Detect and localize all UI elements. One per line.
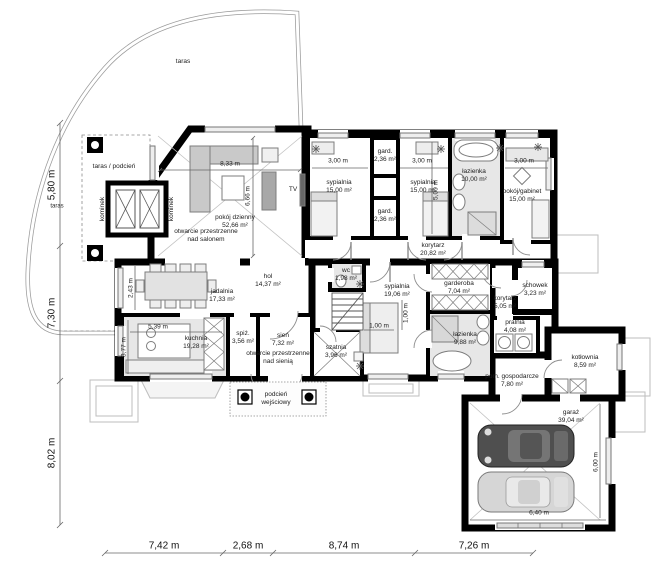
label-open-sien: otwarcie przestrzenne nad sienią [246,350,310,366]
fireplace [108,183,166,235]
dim-left-2: 7,30 m [47,298,58,329]
label-open-salon: otwarcie przestrzenne nad salonem [174,228,238,244]
label-taras-left: taras [50,203,63,211]
room-label-wc: wc1,98 m² [335,267,357,283]
room-label-gard-2: gard.2,36 m² [374,208,396,224]
dim-kuchnia-h: 3,77 m [121,337,128,357]
room-label-pom-gospodarcze: pom. gospodarcze7,80 m² [485,373,538,389]
dim-garaz-w: 6,40 m [529,510,549,517]
label-kominek-right: kominek [168,197,176,221]
dim-bottom-2: 2,68 m [233,541,264,552]
floor-plan-canvas: pokój dzienny52,66 m² sypialnia15,00 m² … [0,0,660,566]
room-label-korytarz-505: korytarz5,05 m² [493,295,516,311]
garage-door [495,521,585,530]
room-label-pralnia: pralnia4,08 m² [504,319,526,335]
room-label-jadalnia: jadalnia17,33 m² [209,288,235,304]
car-light [478,472,574,512]
dim-garaz-h: 6,00 m [593,452,600,472]
room-label-lazienka-988: łazienka9,88 m² [453,331,477,347]
room-label-sien: sień7,32 m² [272,332,294,348]
room-label-szatnia: szatnia3,96 m² [325,344,347,360]
dim-syp1-w: 3,00 m [328,158,348,165]
room-label-gard-1: gard.2,36 m² [374,148,396,164]
dim-gabinet-w: 3,00 m [514,158,534,165]
dim-bottom-1: 7,42 m [149,541,180,552]
car-dark [478,425,574,467]
room-label-sypialnia-3: sypialnia19,06 m² [384,283,410,299]
dim-kuchnia-w: 5,39 m [148,324,168,331]
dim-left-1: 5,80 m [47,170,58,201]
dim-syp2-w: 3,00 m [412,158,432,165]
room-label-kotlownia: kotłownia8,59 m² [571,354,598,370]
room-label-sypialnia-1: sypialnia15,00 m² [326,179,352,195]
label-tv: TV [289,186,297,194]
label-podcien-wejsciowy: podcień wejściowy [261,391,290,407]
dim-living-w: 8,33 m [220,161,240,168]
label-kominek-left: kominek [99,197,107,221]
room-label-garaz: garaż39,04 m² [558,409,584,425]
label-taras-top: taras [176,58,190,66]
dim-bed-h: 1,00 m [403,303,410,323]
dim-jadalnia-h: 2,43 m [128,278,135,298]
room-label-korytarz-2082: korytarz20,82 m² [420,242,446,258]
room-label-garderoba: garderoba7,04 m² [444,280,474,296]
dim-bed-w: 1,00 m [369,323,389,330]
floor-plan-drawing [0,0,660,566]
room-label-spiz: spiż.3,56 m² [232,330,254,346]
label-taras-podcien: taras / podcień [93,163,136,171]
dim-living-h: 6,66 m [245,186,252,206]
dim-bottom-4: 7,26 m [459,541,490,552]
room-label-schowek: schowek3,23 m² [522,282,547,298]
room-label-lazienka-10: łazienka10,00 m² [461,168,487,184]
room-label-gabinet: pokój/gabinet15,00 m² [503,188,542,204]
dim-syp2-h: 5,00 m [433,180,440,200]
dim-left-3: 8,02 m [47,438,58,469]
room-label-kuchnia: kuchnia19,28 m² [183,335,209,351]
staircase [332,293,363,330]
room-label-hol: hol14,37 m² [255,273,281,289]
dim-bottom-3: 8,74 m [329,541,360,552]
